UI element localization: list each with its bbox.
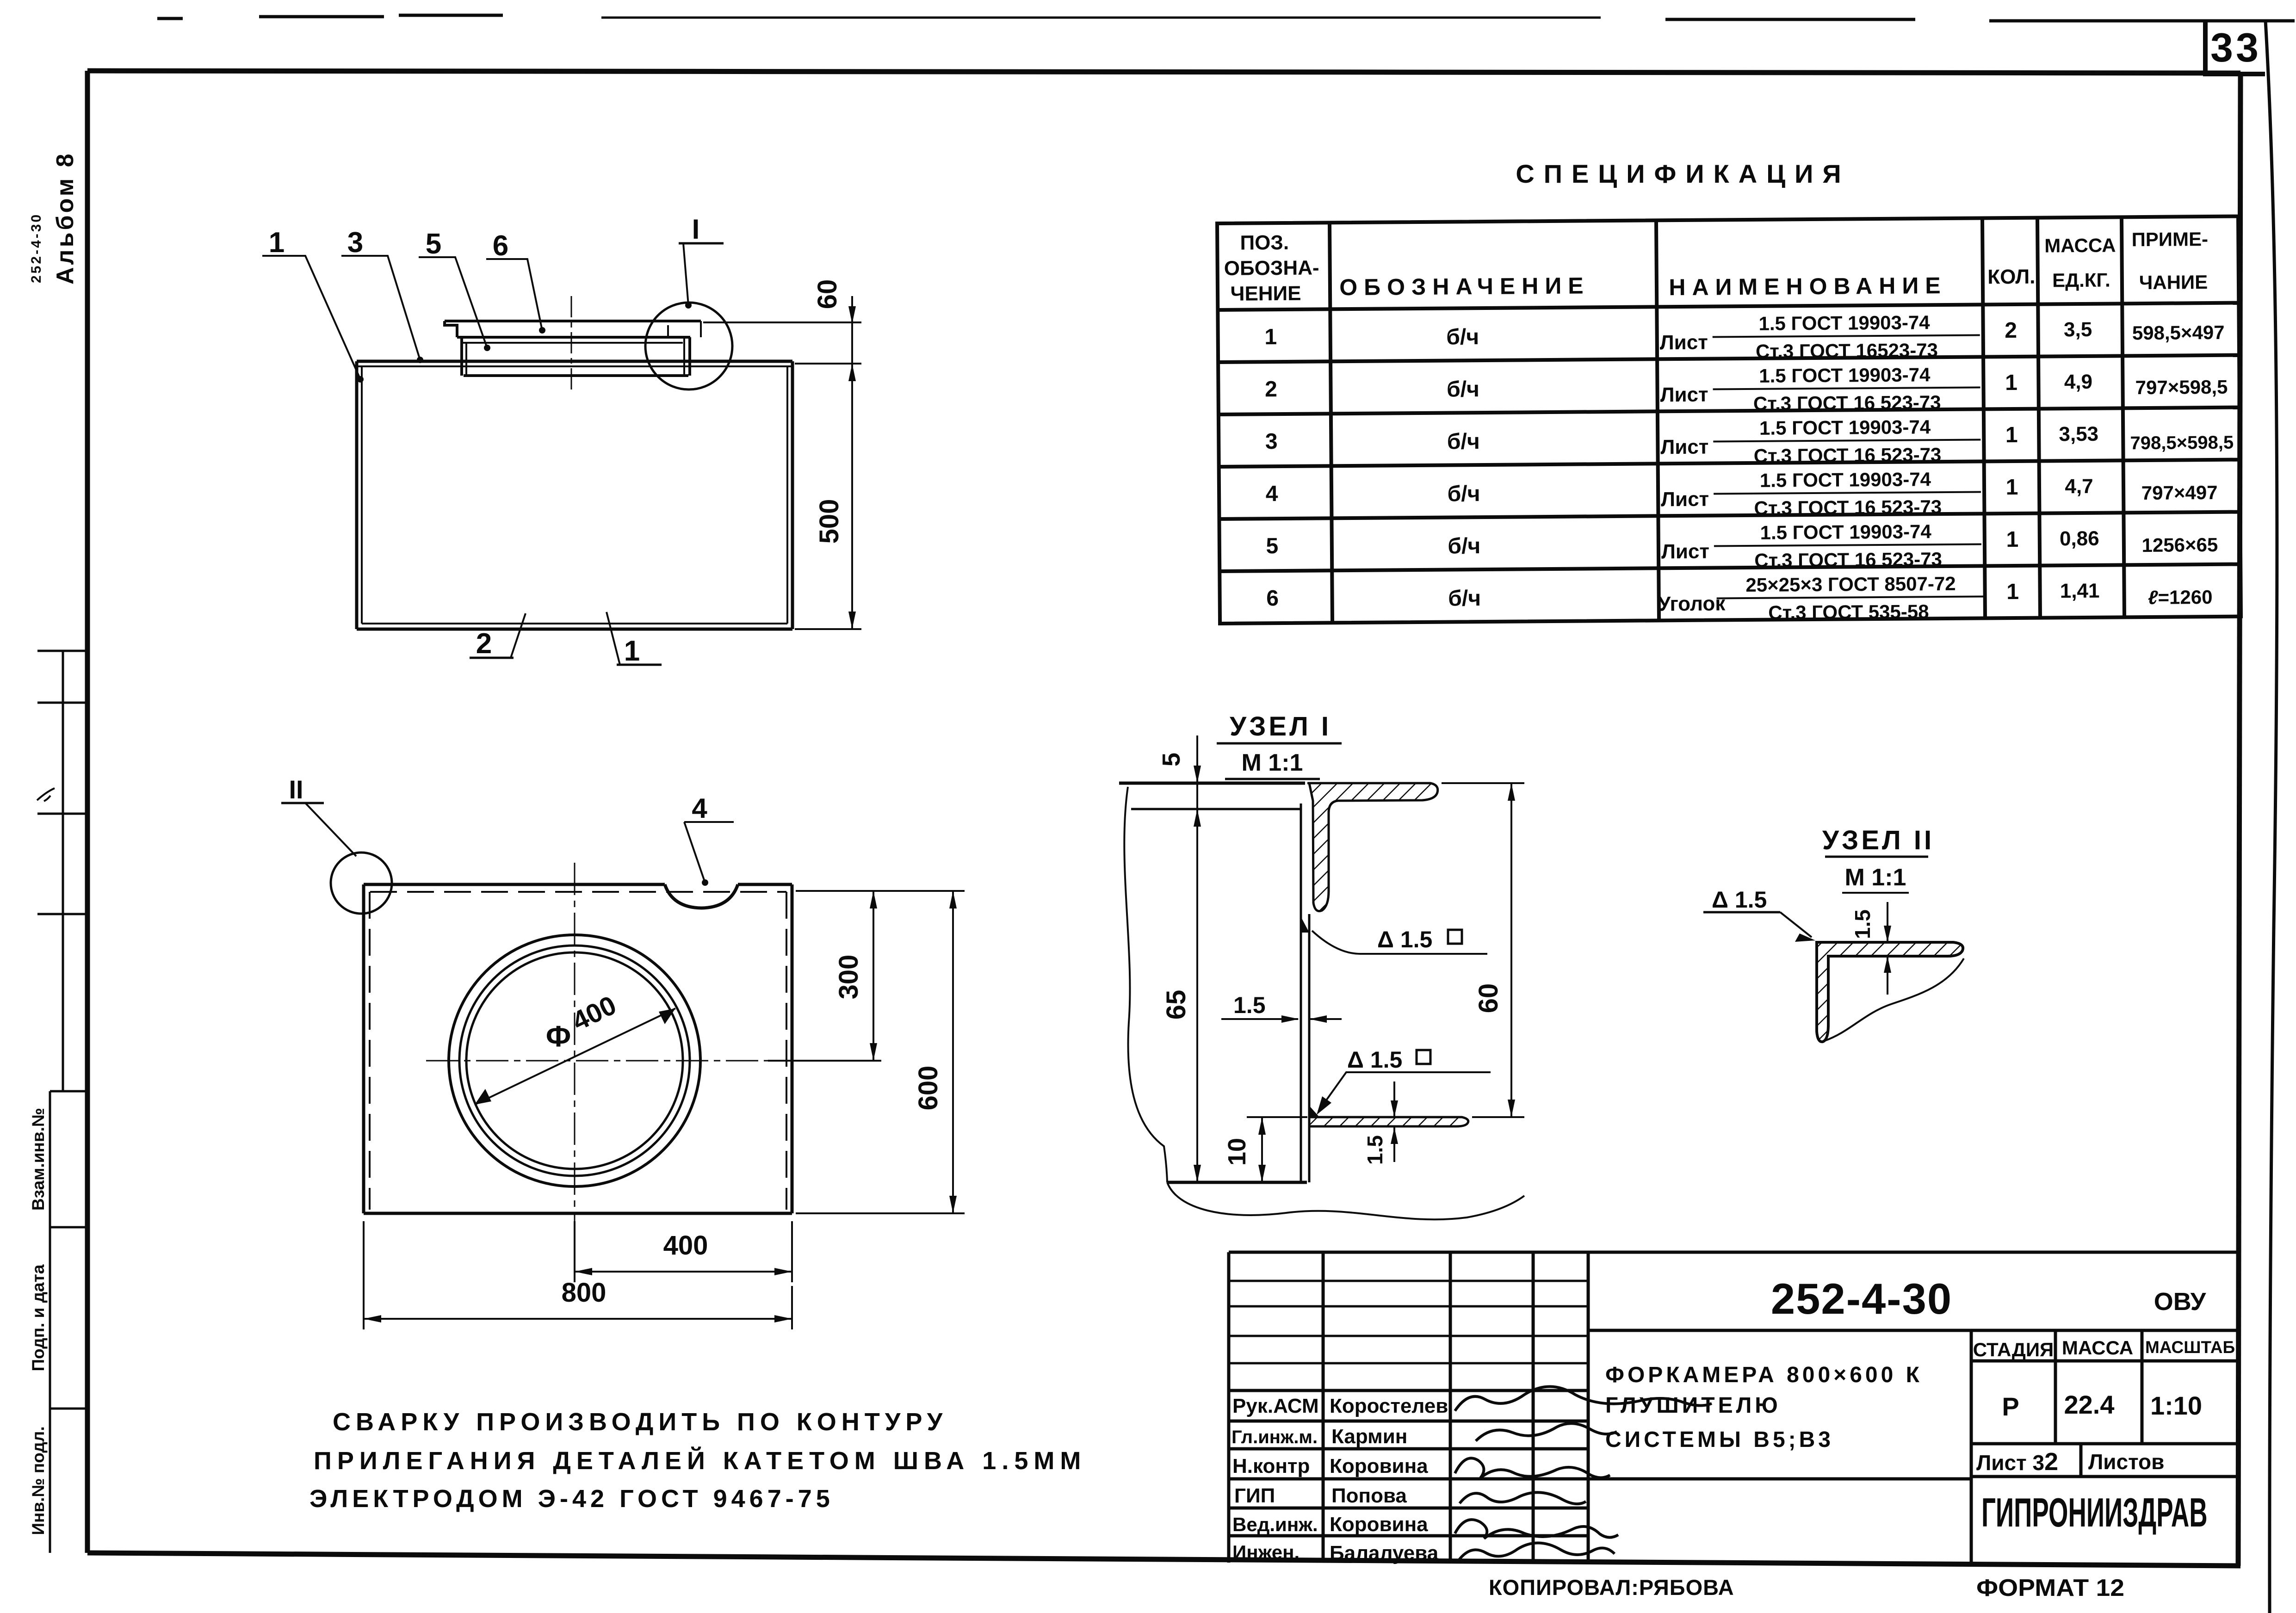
svg-text:б/ч: б/ч xyxy=(1448,534,1480,558)
svg-text:б/ч: б/ч xyxy=(1448,586,1481,611)
svg-text:I: I xyxy=(692,214,700,245)
svg-text:ПОЗ.: ПОЗ. xyxy=(1240,231,1289,254)
svg-text:3: 3 xyxy=(347,227,363,259)
svg-text:65: 65 xyxy=(1161,990,1191,1020)
svg-text:3,5: 3,5 xyxy=(2064,318,2092,341)
svg-text:797×598,5: 797×598,5 xyxy=(2135,376,2228,398)
svg-text:252-4-30: 252-4-30 xyxy=(1771,1274,1952,1323)
svg-text:0,86: 0,86 xyxy=(2060,527,2099,550)
svg-text:НАИМЕНОВАНИЕ: НАИМЕНОВАНИЕ xyxy=(1669,272,1947,300)
svg-text:1.5: 1.5 xyxy=(1363,1135,1387,1165)
svg-text:Ст.3 ГОСТ 535-58: Ст.3 ГОСТ 535-58 xyxy=(1768,600,1929,623)
svg-text:33: 33 xyxy=(2210,25,2261,70)
svg-text:Δ 1.5: Δ 1.5 xyxy=(1347,1047,1402,1073)
svg-text:УЗЕЛ II: УЗЕЛ II xyxy=(1822,825,1934,855)
svg-text:400: 400 xyxy=(663,1230,708,1261)
svg-text:УЗЕЛ I: УЗЕЛ I xyxy=(1230,711,1331,742)
svg-text:Ст.3 ГОСТ 16 523-73: Ст.3 ГОСТ 16 523-73 xyxy=(1754,496,1942,519)
svg-text:Инв.№ подл.: Инв.№ подл. xyxy=(29,1426,48,1535)
svg-text:4: 4 xyxy=(1266,482,1278,506)
svg-text:1.5: 1.5 xyxy=(1850,909,1875,939)
svg-text:ГЛУШИТЕЛЮ: ГЛУШИТЕЛЮ xyxy=(1605,1393,1781,1418)
svg-text:Ст.3 ГОСТ 16 523-73: Ст.3 ГОСТ 16 523-73 xyxy=(1753,391,1941,414)
svg-text:Лист: Лист xyxy=(1660,436,1708,459)
svg-text:Лист: Лист xyxy=(1660,383,1708,407)
svg-text:598,5×497: 598,5×497 xyxy=(2132,321,2225,344)
svg-text:Инжен.: Инжен. xyxy=(1232,1541,1300,1563)
svg-text:800: 800 xyxy=(562,1278,606,1308)
svg-text:М 1:1: М 1:1 xyxy=(1845,864,1906,891)
svg-text:МАССА: МАССА xyxy=(2062,1337,2133,1359)
svg-text:1: 1 xyxy=(2006,580,2019,604)
svg-text:б/ч: б/ч xyxy=(1447,429,1480,454)
svg-text:Коровина: Коровина xyxy=(1330,1513,1428,1536)
svg-text:Лист: Лист xyxy=(1661,540,1709,563)
svg-text:Листов: Листов xyxy=(2088,1450,2164,1474)
svg-text:ПРИМЕ-: ПРИМЕ- xyxy=(2131,228,2208,250)
svg-text:500: 500 xyxy=(814,499,844,544)
svg-text:1: 1 xyxy=(624,635,640,667)
svg-text:Ст.3 ГОСТ 16 523-73: Ст.3 ГОСТ 16 523-73 xyxy=(1754,444,1942,467)
svg-text:ОБОЗНАЧЕНИЕ: ОБОЗНАЧЕНИЕ xyxy=(1339,272,1590,300)
svg-text:Вед.инж.: Вед.инж. xyxy=(1232,1514,1318,1535)
svg-text:Лист: Лист xyxy=(1660,331,1708,354)
svg-text:Подп. и дата: Подп. и дата xyxy=(29,1264,48,1371)
svg-text:22.4: 22.4 xyxy=(2064,1390,2115,1419)
svg-text:1: 1 xyxy=(1264,325,1277,349)
svg-text:Кармин: Кармин xyxy=(1331,1425,1407,1448)
svg-text:ГИПРОНИИЗДРАВ: ГИПРОНИИЗДРАВ xyxy=(1981,1490,2208,1536)
svg-text:Коростелев: Коростелев xyxy=(1330,1395,1448,1417)
svg-text:Ст.3 ГОСТ 16523-73: Ст.3 ГОСТ 16523-73 xyxy=(1756,339,1938,362)
svg-text:5: 5 xyxy=(1266,534,1278,558)
svg-text:Δ 1.5: Δ 1.5 xyxy=(1377,927,1432,952)
svg-text:1,41: 1,41 xyxy=(2060,580,2100,603)
svg-text:4,9: 4,9 xyxy=(2064,371,2093,393)
svg-text:ОВУ: ОВУ xyxy=(2154,1288,2207,1316)
svg-text:1.5: 1.5 xyxy=(1233,992,1266,1018)
svg-text:б/ч: б/ч xyxy=(1447,482,1480,506)
svg-text:б/ч: б/ч xyxy=(1446,325,1479,349)
svg-text:600: 600 xyxy=(913,1066,943,1111)
svg-text:6: 6 xyxy=(493,230,508,262)
svg-text:Лист: Лист xyxy=(1661,488,1709,511)
svg-text:Н.контр: Н.контр xyxy=(1232,1455,1310,1477)
svg-text:Попова: Попова xyxy=(1331,1484,1407,1507)
svg-text:ЭЛЕКТРОДОМ Э-42 ГОСТ 9467-75: ЭЛЕКТРОДОМ Э-42 ГОСТ 9467-75 xyxy=(309,1485,834,1513)
svg-text:СПЕЦИФИКАЦИЯ: СПЕЦИФИКАЦИЯ xyxy=(1516,159,1850,188)
svg-text:ПРИЛЕГАНИЯ ДЕТАЛЕЙ КАТЕТОМ: ПРИЛЕГАНИЯ ДЕТАЛЕЙ КАТЕТОМ ШВА 1.5ММ xyxy=(314,1446,1086,1475)
svg-text:1.5 ГОСТ 19903-74: 1.5 ГОСТ 19903-74 xyxy=(1759,416,1931,439)
svg-text:Балалуева: Балалуева xyxy=(1330,1542,1439,1564)
svg-text:ФОРКАМЕРА 800×600 К: ФОРКАМЕРА 800×600 К xyxy=(1605,1363,1923,1387)
svg-text:ЕД.КГ.: ЕД.КГ. xyxy=(2052,269,2110,291)
svg-text:797×497: 797×497 xyxy=(2141,482,2218,504)
svg-text:Альбом 8: Альбом 8 xyxy=(52,151,79,284)
svg-text:МАСШТАБ: МАСШТАБ xyxy=(2145,1338,2235,1357)
svg-text:6: 6 xyxy=(1266,586,1279,611)
svg-text:МАССА: МАССА xyxy=(2044,234,2116,256)
svg-text:Рук.АСМ: Рук.АСМ xyxy=(1232,1395,1319,1417)
svg-text:ГИП: ГИП xyxy=(1234,1484,1275,1507)
svg-text:2: 2 xyxy=(1265,377,1277,402)
svg-text:СТАДИЯ: СТАДИЯ xyxy=(1973,1339,2054,1360)
svg-text:3: 3 xyxy=(1265,429,1278,454)
svg-text:ОБОЗНА-: ОБОЗНА- xyxy=(1224,256,1319,279)
svg-text:ЧАНИЕ: ЧАНИЕ xyxy=(2139,271,2208,293)
svg-text:1: 1 xyxy=(2005,423,2018,447)
svg-text:Р: Р xyxy=(2002,1392,2019,1421)
svg-text:СИСТЕМЫ В5;В3: СИСТЕМЫ В5;В3 xyxy=(1605,1428,1834,1452)
svg-text:1: 1 xyxy=(2005,371,2018,395)
svg-text:25×25×3 ГОСТ 8507-72: 25×25×3 ГОСТ 8507-72 xyxy=(1745,573,1956,596)
svg-text:4: 4 xyxy=(692,793,707,824)
svg-text:60: 60 xyxy=(812,279,842,309)
svg-text:10: 10 xyxy=(1223,1138,1251,1166)
svg-text:Лист 32: Лист 32 xyxy=(1976,1448,2058,1476)
svg-text:2: 2 xyxy=(476,628,492,660)
svg-text:1: 1 xyxy=(2005,475,2018,500)
svg-text:1.5 ГОСТ 19903-74: 1.5 ГОСТ 19903-74 xyxy=(1760,468,1931,491)
svg-text:ЧЕНИЕ: ЧЕНИЕ xyxy=(1230,282,1301,305)
svg-text:4,7: 4,7 xyxy=(2065,475,2093,498)
svg-text:II: II xyxy=(289,775,303,804)
svg-text:1: 1 xyxy=(269,227,285,259)
svg-text:Ст.3 ГОСТ 16 523-73: Ст.3 ГОСТ 16 523-73 xyxy=(1754,548,1942,571)
svg-text:1: 1 xyxy=(2006,527,2018,552)
svg-text:1.5 ГОСТ 19903-74: 1.5 ГОСТ 19903-74 xyxy=(1758,311,1930,334)
svg-text:Коровина: Коровина xyxy=(1330,1455,1428,1477)
svg-text:5: 5 xyxy=(426,228,441,260)
svg-text:Взам.инв.№: Взам.инв.№ xyxy=(29,1108,48,1211)
svg-text:КОПИРОВАЛ:РЯБОВА: КОПИРОВАЛ:РЯБОВА xyxy=(1489,1575,1734,1600)
svg-text:КОЛ.: КОЛ. xyxy=(1987,266,2035,289)
svg-text:Уголок: Уголок xyxy=(1658,592,1726,615)
svg-text:ℓ=1260: ℓ=1260 xyxy=(2148,586,2213,608)
svg-text:300: 300 xyxy=(834,955,864,1000)
svg-text:1256×65: 1256×65 xyxy=(2141,534,2218,556)
svg-text:Δ 1.5: Δ 1.5 xyxy=(1712,887,1767,913)
svg-text:М 1:1: М 1:1 xyxy=(1242,749,1303,776)
svg-text:Ф: Ф xyxy=(546,1020,571,1053)
svg-text:1.5 ГОСТ 19903-74: 1.5 ГОСТ 19903-74 xyxy=(1760,520,1931,544)
svg-text:252-4-30: 252-4-30 xyxy=(29,213,44,283)
svg-text:2: 2 xyxy=(2005,318,2017,343)
svg-text:1.5 ГОСТ 19903-74: 1.5 ГОСТ 19903-74 xyxy=(1759,364,1931,387)
svg-text:60: 60 xyxy=(1473,983,1504,1014)
svg-text:б/ч: б/ч xyxy=(1447,377,1479,402)
svg-text:Гл.инж.м.: Гл.инж.м. xyxy=(1232,1427,1318,1447)
svg-text:СВАРКУ ПРОИЗВОДИТЬ ПО КОНТУ: СВАРКУ ПРОИЗВОДИТЬ ПО КОНТУРУ xyxy=(333,1408,947,1436)
svg-text:1:10: 1:10 xyxy=(2150,1391,2202,1420)
svg-text:5: 5 xyxy=(1157,753,1185,766)
svg-text:3,53: 3,53 xyxy=(2059,423,2098,446)
svg-text:ФОРМАТ 12: ФОРМАТ 12 xyxy=(1976,1575,2124,1601)
svg-text:798,5×598,5: 798,5×598,5 xyxy=(2130,433,2234,454)
